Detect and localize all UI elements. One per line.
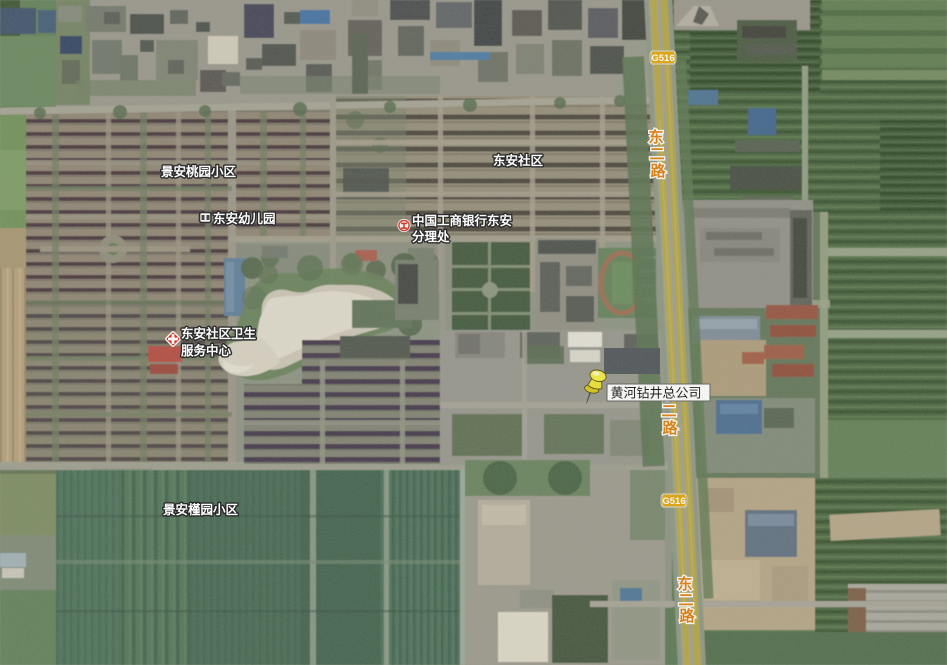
svg-text:服务中心: 服务中心 bbox=[181, 343, 232, 358]
svg-text:中国工商银行东安: 中国工商银行东安 bbox=[412, 213, 512, 228]
svg-text:东安社区卫生: 东安社区卫生 bbox=[181, 326, 257, 341]
svg-text:分理处: 分理处 bbox=[412, 229, 450, 244]
svg-text:景安桃园小区: 景安桃园小区 bbox=[161, 164, 237, 179]
svg-text:景安槿园小区: 景安槿园小区 bbox=[163, 502, 239, 517]
svg-text:东安社区: 东安社区 bbox=[493, 153, 544, 168]
svg-text:东安幼儿园: 东安幼儿园 bbox=[213, 211, 276, 226]
